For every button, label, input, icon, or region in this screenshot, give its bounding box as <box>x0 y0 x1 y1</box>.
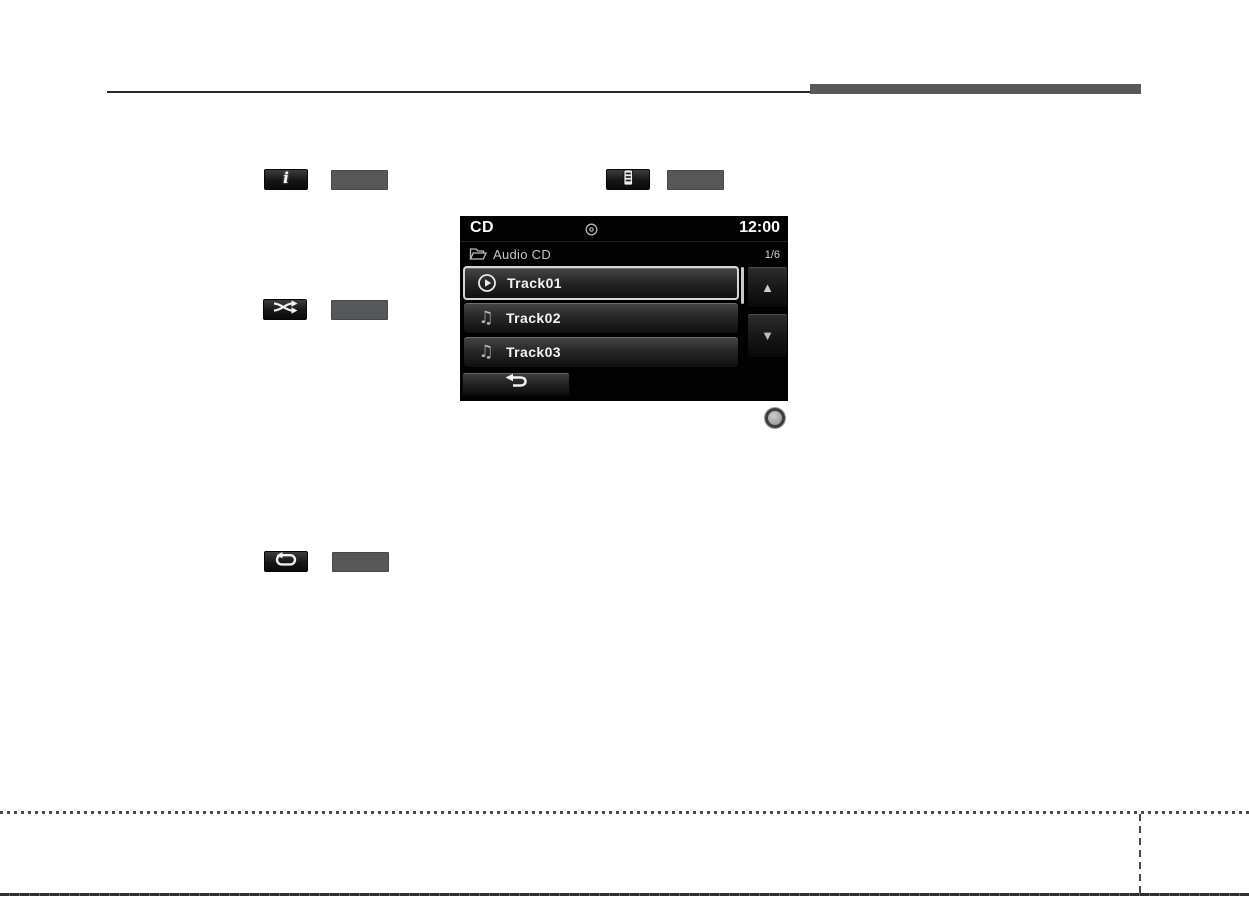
music-note-icon: ♫ <box>476 342 496 362</box>
status-bar: CD 12:00 <box>460 216 788 242</box>
clock: 12:00 <box>739 219 780 237</box>
track-title: Track01 <box>507 275 562 291</box>
repeat-button[interactable] <box>264 551 308 572</box>
scrollbar-indicator <box>741 267 744 304</box>
page-indicator: 1/6 <box>765 249 780 261</box>
music-note-icon: ♫ <box>476 308 496 328</box>
scroll-up-button[interactable]: ▲ <box>747 266 788 308</box>
chapter-tab-bar <box>810 84 1141 94</box>
source-label: CD <box>470 219 494 237</box>
track-list-button[interactable] <box>606 169 650 190</box>
disc-icon <box>585 223 598 241</box>
up-arrow-icon: ▲ <box>761 280 774 295</box>
info-button[interactable]: i <box>264 169 308 190</box>
manual-page: i <box>0 0 1249 897</box>
play-icon <box>477 273 497 293</box>
track-title: Track02 <box>506 310 561 326</box>
footer-dashed-rule <box>0 811 1249 814</box>
cd-screen: CD 12:00 Audio CD 1/6 <box>460 216 788 401</box>
track-title: Track03 <box>506 344 561 360</box>
info-icon: i <box>283 171 289 186</box>
tune-knob[interactable] <box>765 408 785 428</box>
return-arrow-icon <box>503 373 530 395</box>
track-item[interactable]: ♫ Track02 <box>463 302 739 334</box>
folder-row: Audio CD 1/6 <box>460 243 788 266</box>
repeat-icon <box>274 552 298 572</box>
footer-dashed-divider <box>1139 814 1141 897</box>
header-rule <box>107 91 812 93</box>
scroll-down-button[interactable]: ▼ <box>747 313 788 358</box>
greeked-button-label <box>332 552 389 572</box>
greeked-button-label <box>667 170 724 190</box>
folder-icon <box>469 247 487 266</box>
shuffle-button[interactable] <box>263 299 307 320</box>
back-button[interactable] <box>462 372 570 396</box>
track-list-icon <box>621 169 635 191</box>
folder-label: Audio CD <box>493 247 551 262</box>
track-item[interactable]: ♫ Track03 <box>463 336 739 368</box>
page-bottom-rule <box>0 893 1249 896</box>
down-arrow-icon: ▼ <box>761 328 774 343</box>
greeked-button-label <box>331 300 388 320</box>
track-item[interactable]: Track01 <box>463 266 739 300</box>
greeked-button-label <box>331 170 388 190</box>
shuffle-icon <box>272 300 298 319</box>
